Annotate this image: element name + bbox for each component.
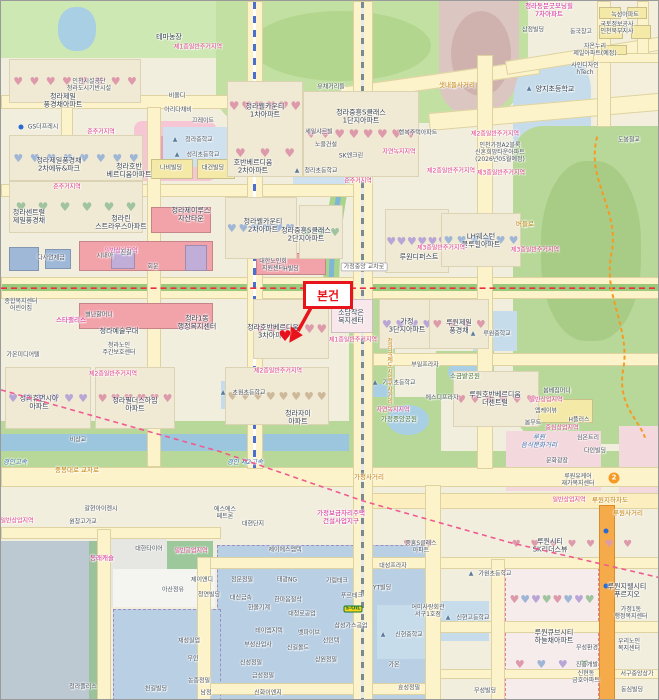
map-label: 동국창고: [570, 28, 592, 35]
map-label: 한올기계: [248, 604, 270, 611]
map-label: 신성정밀: [240, 659, 262, 666]
zoning-label: 일반상업지역: [552, 496, 585, 503]
map-label: 끄레이트: [192, 117, 214, 124]
map-label: 양지초등학교: [536, 85, 575, 93]
map-label: 루원시티 SK리더스뷰: [533, 538, 568, 555]
map-label: 루원제일 풍경채: [446, 319, 472, 336]
map-label: YT빌딩: [373, 584, 391, 591]
map-label: 세일샤르빌: [305, 128, 333, 135]
map-label: 재성실업: [178, 637, 200, 644]
poi-dot-icon: [604, 529, 609, 534]
map-label: 아리다채비: [164, 106, 192, 113]
map-label: 가정 3단지아파트: [389, 318, 426, 335]
map-label: 성리초등학교: [186, 151, 219, 158]
map-label: 효성정밀: [398, 684, 420, 691]
subject-property-marker: ♥: [278, 327, 291, 345]
map-label: 인천가정A2블록 신혼희망타운아파트 (2026년05월예정): [475, 142, 525, 164]
map-label: 대신금속: [230, 594, 252, 601]
zoning-label: 준주거지역: [53, 183, 81, 190]
map-label: 대현단지: [242, 520, 264, 527]
zoning-label: 제1종일반주거지역: [174, 43, 222, 50]
map-label: 루원지웰시티 푸르지오: [608, 583, 647, 600]
map-label: 상원정밀: [315, 656, 337, 663]
map-label: 소금밭공원: [450, 373, 480, 381]
map-label: 문화광장: [546, 457, 568, 464]
map-label: 비상교: [70, 436, 87, 443]
map-label: 청라린 스트라우스아파트: [95, 215, 147, 232]
map-label: 가정중앙 교차로: [341, 262, 388, 271]
map-label: SK엔크린: [339, 152, 363, 159]
map-label: 벳파이브: [298, 629, 320, 636]
map-label: 신현중학교: [395, 631, 423, 638]
map-label: 노을건설: [315, 141, 337, 148]
map-label: 남정: [200, 689, 211, 696]
map-label: 청라중흥S클래스 1단지아파트: [336, 109, 386, 126]
map-canvas[interactable]: ♥♥♥♥♥♥♥♥♥♥♥♥♥♥♥♥♥♥♥♥♥♥♥♥♥♥♥♥♥♥♥♥♥♥♥♥♥♥♥♥…: [0, 0, 659, 700]
map-label: 청라제일 풍경채아파트: [44, 93, 83, 110]
map-label: 신현고등학교: [456, 614, 489, 621]
subject-annotation-box: 본건: [303, 281, 353, 309]
map-label: 소담작은 복지센터: [338, 309, 364, 326]
map-label: GS더프레시: [28, 123, 59, 130]
map-label: 가정1동 행정복지센터: [614, 606, 647, 620]
road-label: 샛내들사거리: [439, 82, 475, 90]
map-label: 에스디프라자: [425, 394, 458, 401]
map-label: 서구중앙상가: [620, 670, 653, 677]
road-label: 루원 음식문화거리: [521, 434, 557, 450]
school-icon: ▲: [527, 86, 532, 92]
map-label: 무성환경: [576, 644, 598, 651]
zoning-label: 제1종일반주거지역: [329, 336, 377, 343]
zoning-label: 제3종일반주거지역: [511, 246, 559, 253]
map-label: 루원디퍼스트: [400, 253, 439, 261]
zoning-label: 일반상업지역: [529, 396, 562, 403]
map-label: 청라노인 주간보호센터: [102, 342, 135, 356]
map-label: 천길빌딩: [145, 685, 167, 692]
gas-station-icon: S-OIL: [344, 606, 363, 613]
map-label: 루원큐브시티 하늘채아파트: [535, 629, 574, 646]
map-label: 무성빌딩: [474, 687, 496, 694]
map-label: 루원중학교: [483, 330, 511, 337]
map-label: 아산정유: [162, 586, 184, 593]
map-label: 다사언제금: [37, 254, 65, 261]
zoning-label: 일반공업지역: [174, 547, 207, 554]
icons-layer: ▲▲▲▲▲▲▲▲▲▲S-OIL2: [1, 1, 658, 699]
map-label: 별난할머니: [85, 311, 113, 318]
map-label: 가정중앙공원: [381, 416, 417, 424]
zoning-label: 제2종일반주거지역: [427, 167, 475, 174]
zoning-label: 일반상업지역: [0, 517, 33, 524]
map-label: 신현동 금호아파트: [572, 670, 600, 684]
map-label: 제이에스엠텍: [268, 546, 301, 553]
zoning-label: 중심상업지역: [545, 424, 578, 431]
map-label: 동래캐슬: [90, 555, 114, 563]
map-label: 시내아: [97, 252, 114, 259]
map-label: 엠케이뷰: [535, 407, 557, 414]
map-label: 에스에스 페트론: [214, 506, 236, 520]
subject-annotation-label: 본건: [317, 287, 339, 304]
zoning-label: 준주거지역: [344, 177, 372, 184]
map-label: 청라웰카운티 2차아파트: [244, 218, 283, 235]
map-label: 행복주택아파트: [399, 129, 438, 136]
zoning-label: 자연녹지지역: [376, 406, 409, 413]
map-label: 인천시설공단 청라도시기반시설: [67, 78, 111, 92]
road-label: 루원지하차도: [592, 497, 628, 505]
map-label: 회운: [147, 263, 158, 270]
road-label: 버들로: [516, 221, 534, 229]
map-label: 원창고가교: [69, 518, 97, 525]
map-label: 도봉철교: [618, 136, 640, 143]
map-label: 신길몰드: [287, 644, 309, 651]
map-label: 청라1동 행정복지센터: [178, 315, 217, 332]
map-label: 청라중흥S클래스 2단지아파트: [281, 227, 331, 244]
map-label: 신화이엔지: [254, 689, 282, 696]
road-label: 경인고속: [3, 459, 27, 467]
road-label: 중봉대로 교차로: [55, 467, 99, 475]
map-label: 심온트리: [577, 434, 599, 441]
map-label: 부성산업사: [244, 641, 272, 648]
map-label: 부일프라자: [411, 361, 439, 368]
map-label: 비올디: [169, 92, 186, 99]
map-label: 청라초등학교: [304, 167, 337, 174]
map-label: 루원호반베르디움 더센트럴: [469, 391, 521, 408]
school-icon: ▲: [173, 137, 178, 143]
map-label: 청라필더스하임 아파트: [112, 397, 157, 414]
map-label: 청라중학교: [185, 136, 213, 143]
map-label: H플러스: [568, 416, 589, 423]
map-label: LH웨스턴 블루힐아파트: [462, 233, 501, 250]
school-icon: ▲: [446, 615, 451, 621]
map-label: 청라예술무대: [100, 327, 139, 335]
zoning-label: 제3종일반주거지역: [477, 169, 525, 176]
map-label: 다인빌딩: [584, 447, 606, 454]
road-label: 가정사거리: [354, 474, 384, 482]
map-label: 청라휴먼시아 아파트: [20, 395, 59, 412]
map-label: 제이앤디: [191, 576, 213, 583]
map-label: 삼성가스공업: [334, 622, 367, 629]
map-label: 한마음절삭: [274, 596, 302, 603]
map-label: 대청로공업: [288, 610, 316, 617]
map-label: 가림테크: [326, 577, 348, 584]
map-label: 진흥개발: [576, 661, 598, 668]
map-label: 봄무트: [525, 419, 542, 426]
map-label: 갈현아이젠시: [84, 505, 117, 512]
map-label: 청라제이루스 자산타운: [172, 207, 211, 224]
poi-dot-icon: [19, 125, 24, 130]
map-label: 태광NG: [277, 576, 297, 583]
map-label: H빌딩: [283, 265, 299, 272]
map-label: 사인디자인 hTech: [571, 62, 599, 76]
school-icon: ▲: [295, 168, 300, 174]
map-label: 테마농장: [156, 33, 182, 41]
map-label: 금성정밀: [252, 672, 274, 679]
map-label: 유채거리들: [317, 83, 345, 90]
map-label: 농종정밀: [188, 677, 210, 684]
map-label: 초원초등학교: [232, 389, 265, 396]
map-label: 어미사랑회관 서구1호점: [411, 604, 444, 618]
zoning-label: 제2종일반주거지역: [471, 130, 519, 137]
map-label: 중흥S클래스 아파트: [405, 540, 436, 554]
map-label: 스타팰리스: [56, 317, 86, 325]
map-label: 청라자이 아파트: [285, 410, 311, 427]
zoning-label: 자연녹지지역: [382, 148, 415, 155]
map-label: 청라호반 베르디움아파트: [106, 163, 151, 180]
zoning-label: 준주거지역: [87, 128, 115, 135]
map-label: 청연빌딩: [198, 591, 220, 598]
map-label: 진길: [120, 249, 131, 256]
zoning-label: 제2종일반주거지역: [254, 367, 302, 374]
map-label: 종합복지센터 어린이집: [4, 298, 37, 312]
map-label: 자온누리 제일아파트(예정): [573, 43, 616, 57]
map-label: 선인텍: [323, 637, 340, 644]
school-icon: ▲: [175, 152, 180, 158]
map-label: 삼정빌딩: [522, 26, 544, 33]
map-label: 호반베르디움 2차아파트: [234, 159, 273, 176]
map-label: 녹성아파트: [611, 11, 639, 18]
map-label: 청라플러스: [69, 683, 97, 690]
road-label: 루원사거리: [613, 510, 643, 518]
map-label: 가온: [388, 661, 399, 668]
map-label: 무인: [187, 655, 198, 662]
map-label: 루원유케어 재가복지센터: [561, 473, 594, 487]
map-label: 청라제일풍경채 2차에듀&파크: [36, 157, 81, 174]
map-label: 동심빌딩: [621, 686, 643, 693]
map-label: 푸르테크: [341, 592, 363, 599]
school-icon: ▲: [469, 571, 474, 577]
map-label: 우리노인 복지센터: [618, 638, 640, 652]
road-label: 경인 제2고속: [227, 459, 263, 467]
map-label: 가정보금자리주택 건설사업지구: [317, 510, 365, 526]
zoning-label: 제3종일반주거지역: [417, 244, 465, 251]
map-label: 청라동문굿모닝힐 7차아파트: [525, 3, 573, 19]
map-label: 청라센트럴 제일풍경채: [13, 209, 45, 226]
zoning-label: 제2종일반주거지역: [89, 370, 137, 377]
map-label: 테이엠지텍: [255, 627, 283, 634]
map-label: 정문정밀: [231, 576, 253, 583]
map-label: 대한타이어: [135, 545, 163, 552]
map-label: 청라웰카운티 1차아파트: [246, 103, 285, 120]
map-label: 나비빌딩: [160, 164, 182, 171]
route-shield-icon: 2: [609, 473, 620, 484]
map-label: 청라국제도시입구사거리: [385, 338, 392, 404]
school-icon: ▲: [221, 390, 226, 396]
school-icon: ▲: [373, 380, 378, 386]
map-label: 가원초등학교: [478, 570, 511, 577]
map-label: 대건빌딩: [202, 164, 224, 171]
school-icon: ▲: [381, 632, 386, 638]
map-label: 국토정보공사 인천북부지사: [600, 21, 633, 35]
map-label: 봄베짐머니: [543, 387, 571, 394]
map-label: 가온미디어텔: [6, 351, 39, 358]
map-label: 대성프라자: [379, 562, 407, 569]
